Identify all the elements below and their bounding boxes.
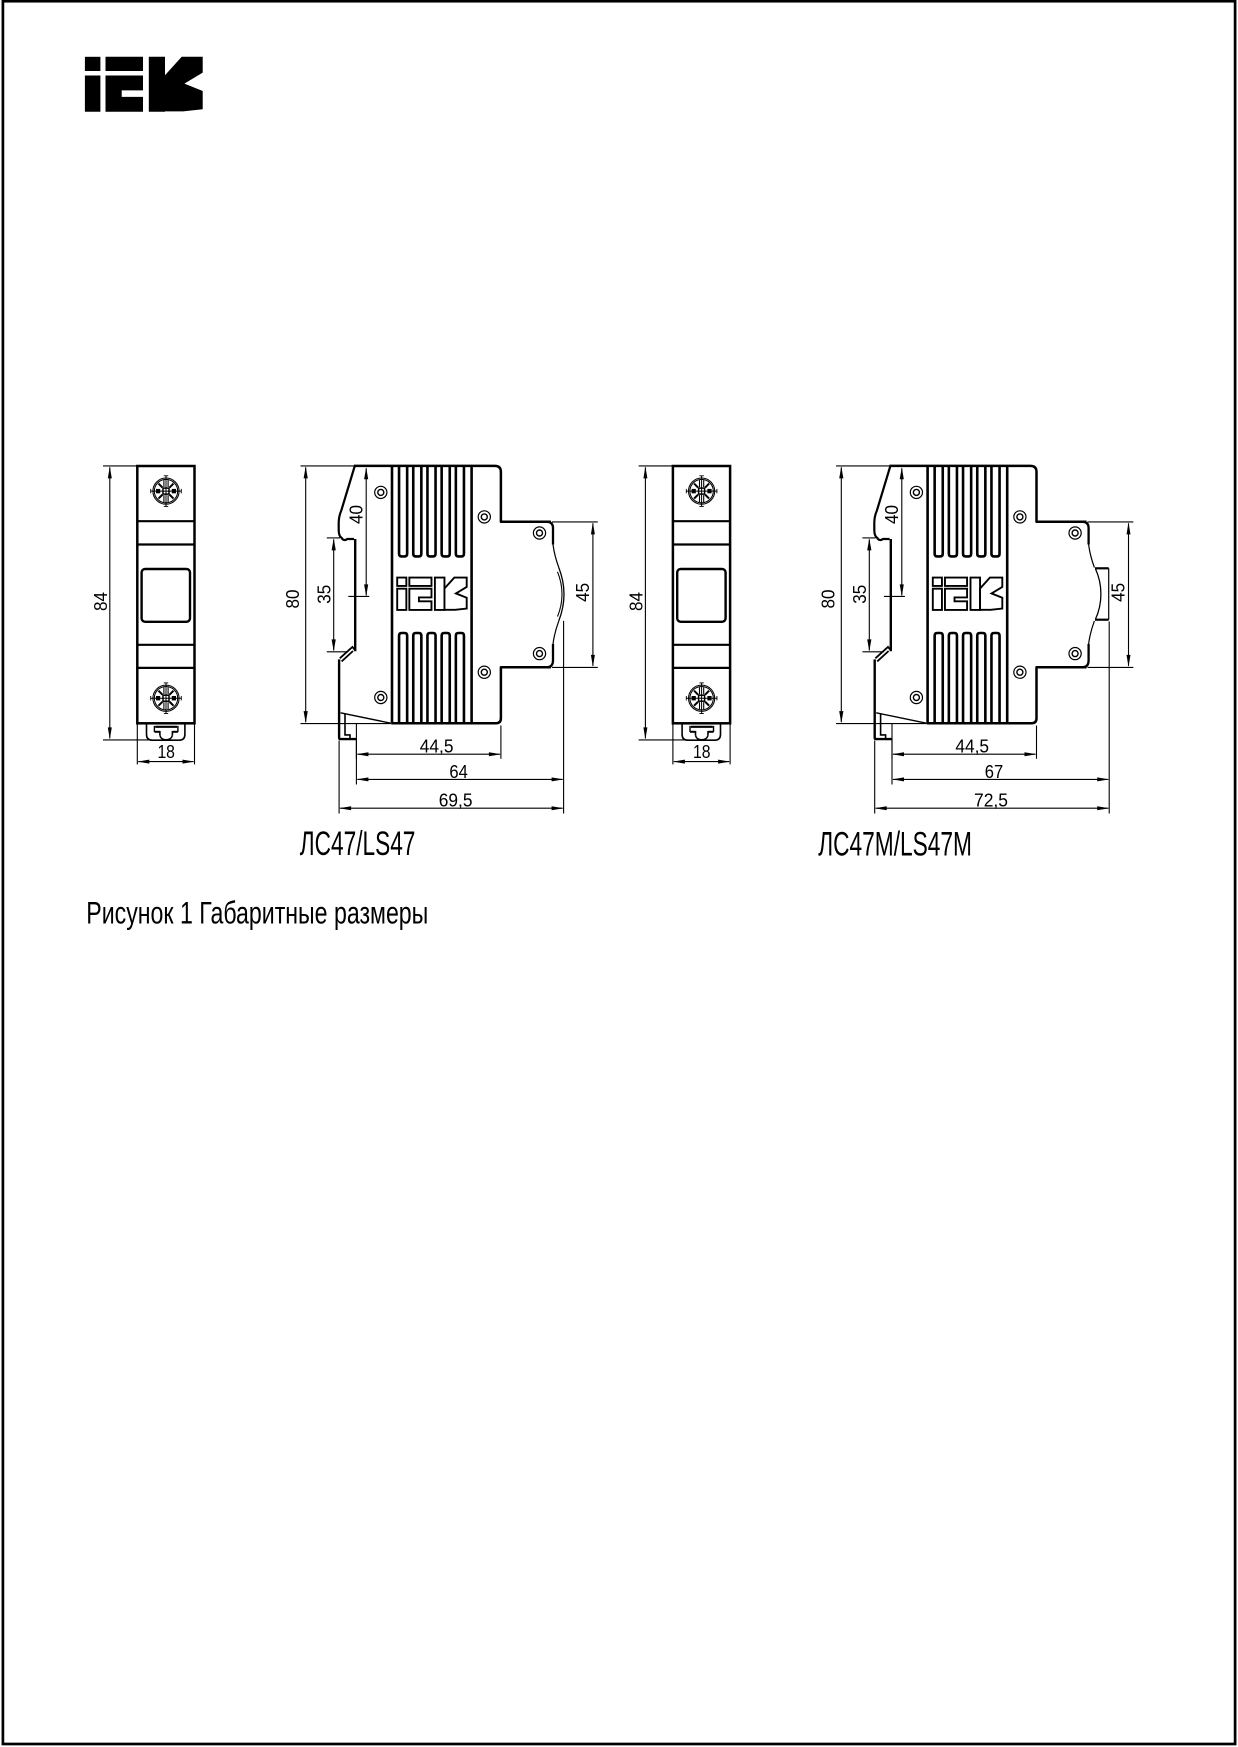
svg-text:ЛС47М/LS47M: ЛС47М/LS47M (818, 825, 972, 863)
svg-text:64: 64 (449, 761, 467, 782)
svg-text:67: 67 (985, 761, 1003, 782)
svg-text:69,5: 69,5 (439, 790, 473, 811)
svg-text:72,5: 72,5 (974, 790, 1008, 811)
svg-text:84: 84 (90, 592, 111, 611)
svg-text:45: 45 (572, 583, 593, 602)
svg-text:40: 40 (346, 505, 367, 524)
svg-text:35: 35 (313, 585, 334, 604)
svg-text:18: 18 (157, 741, 175, 762)
svg-text:ЛС47/LS47: ЛС47/LS47 (300, 825, 416, 863)
svg-text:80: 80 (282, 590, 303, 609)
svg-text:Рисунок 1 Габаритные размеры: Рисунок 1 Габаритные размеры (86, 895, 428, 931)
svg-text:44,5: 44,5 (420, 735, 454, 756)
